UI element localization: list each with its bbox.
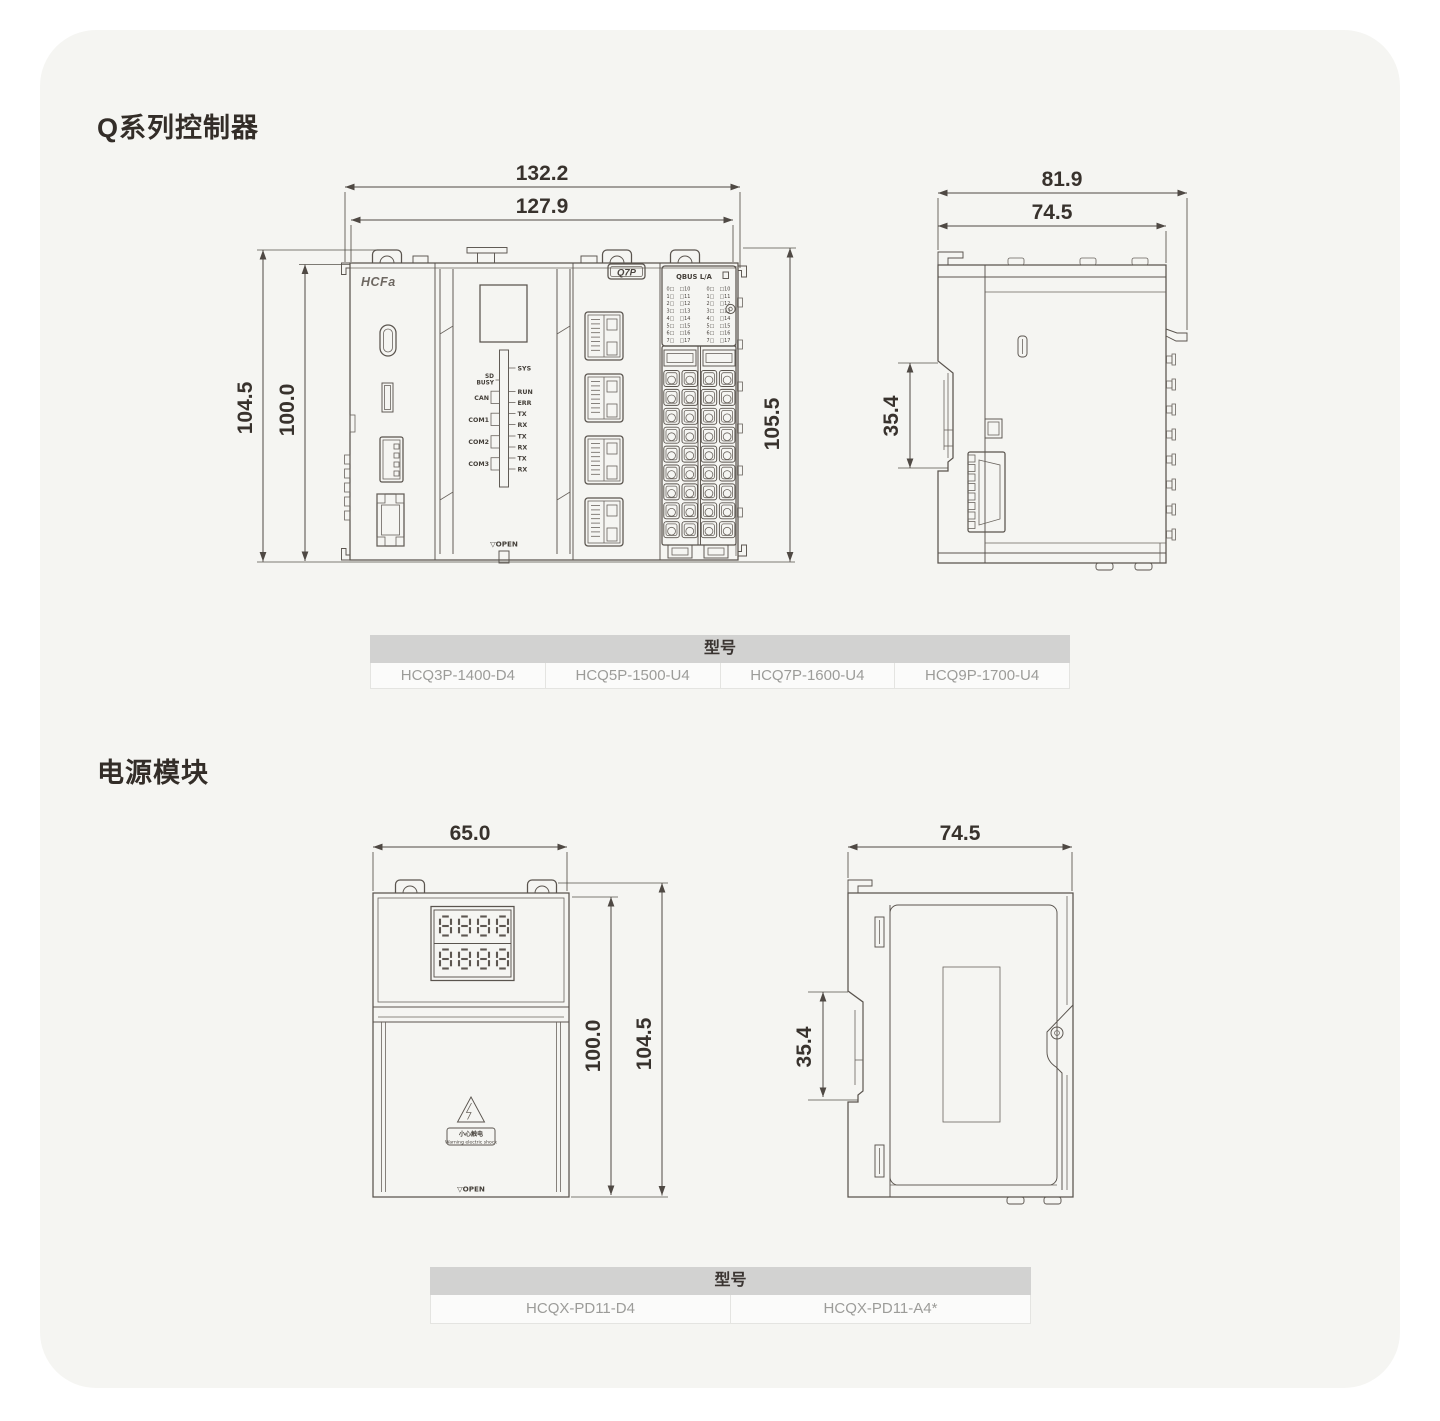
svg-text:RX: RX	[518, 466, 528, 473]
backplane-connector	[968, 452, 1005, 532]
svg-text:□17: □17	[680, 338, 691, 344]
svg-text:2□: 2□	[707, 301, 715, 307]
svg-text:□14: □14	[680, 316, 691, 322]
bus-hook	[1166, 329, 1187, 341]
svg-text:BUSY: BUSY	[477, 381, 495, 387]
svg-text:3□: 3□	[667, 309, 675, 315]
io-led-matrix: 0□□100□□101□□111□□112□□122□□123□□133□□13…	[667, 287, 731, 344]
svg-text:□16: □16	[720, 331, 731, 337]
svg-text:□11: □11	[680, 294, 691, 300]
warning-en: Warning electric shock	[445, 1140, 497, 1146]
model-cell: HCQX-PD11-A4*	[731, 1295, 1030, 1323]
svg-text:6□: 6□	[667, 331, 675, 337]
controller-model-table: 型号 HCQ3P-1400-D4HCQ5P-1500-U4HCQ7P-1600-…	[370, 635, 1070, 689]
svg-text:RUN: RUN	[518, 389, 533, 396]
open-label: ▽OPEN	[457, 1185, 485, 1194]
mounting-tabs	[396, 880, 557, 893]
svg-text:4□: 4□	[707, 316, 715, 322]
svg-text:5□: 5□	[707, 323, 715, 329]
svg-text:RX: RX	[518, 444, 528, 451]
svg-text:0□: 0□	[667, 287, 675, 293]
dim-width-inner: 127.9	[516, 195, 569, 218]
table-header: 型号	[370, 635, 1070, 663]
svg-text:1□: 1□	[707, 294, 715, 300]
dim-width-outer: 132.2	[516, 162, 569, 185]
warning-cn: 小心触电	[458, 1130, 483, 1138]
table-header: 型号	[430, 1267, 1031, 1295]
svg-text:□13: □13	[680, 309, 691, 315]
svg-text:□12: □12	[680, 301, 691, 307]
dim-height-inner: 100.0	[582, 1020, 605, 1073]
svg-text:□10: □10	[720, 287, 731, 293]
svg-text:5□: 5□	[667, 323, 675, 329]
warning-sign: 小心触电 Warning electric shock	[445, 1097, 497, 1146]
svg-text:□15: □15	[720, 323, 731, 329]
svg-text:0□: 0□	[707, 287, 715, 293]
expansion-port	[377, 494, 404, 546]
terminal-grid	[664, 371, 735, 538]
power-model-table: 型号 HCQX-PD11-D4HCQX-PD11-A4*	[430, 1267, 1031, 1324]
svg-text:1□: 1□	[667, 294, 675, 300]
power-front-drawing: 小心触电 Warning electric shock ▽OPEN 65.0 1…	[373, 822, 668, 1197]
svg-text:□11: □11	[720, 294, 731, 300]
model-cell: HCQ9P-1700-U4	[895, 663, 1069, 688]
io-header-label: QBUS L/A	[676, 273, 713, 281]
svg-text:RX: RX	[518, 422, 528, 429]
table-row: HCQ3P-1400-D4HCQ5P-1500-U4HCQ7P-1600-U4H…	[370, 663, 1070, 689]
svg-text:6□: 6□	[707, 331, 715, 337]
svg-text:3□: 3□	[707, 309, 715, 315]
svg-text:4□: 4□	[667, 316, 675, 322]
top-hook	[938, 252, 963, 265]
svg-text:TX: TX	[518, 411, 527, 418]
dim-din-rail: 35.4	[793, 1026, 816, 1067]
sd-card-slot	[382, 383, 393, 412]
svg-text:SD: SD	[485, 374, 494, 380]
svg-text:□12: □12	[720, 301, 731, 307]
drawings-layer: HCFa SYSRUNERRTXRXTXRXTXRX SDBUSYCANCOM	[0, 0, 1440, 1421]
model-cell: HCQ7P-1600-U4	[721, 663, 896, 688]
svg-text:□15: □15	[680, 323, 691, 329]
open-label: ▽OPEN	[490, 540, 518, 549]
power-side-drawing: 74.5 35.4	[793, 822, 1073, 1204]
model-cell: HCQX-PD11-D4	[431, 1295, 731, 1323]
dim-din-rail: 35.4	[880, 395, 903, 436]
dim-height-outer: 104.5	[633, 1017, 656, 1070]
model-cell: HCQ5P-1500-U4	[546, 663, 721, 688]
svg-text:TX: TX	[518, 455, 527, 462]
svg-text:ERR: ERR	[518, 400, 532, 407]
svg-text:COM3: COM3	[468, 461, 489, 468]
svg-text:7□: 7□	[667, 338, 675, 344]
usb-c-port	[380, 325, 396, 356]
led-strip	[500, 350, 509, 487]
dim-width: 65.0	[450, 822, 491, 845]
io-module: QBUS L/A 0□□100□□101□□111□□112□□122□□123…	[662, 266, 747, 558]
usb-a-port	[380, 437, 403, 482]
cpu-window	[480, 285, 527, 342]
dim-depth: 74.5	[940, 822, 981, 845]
dim-height-inner: 100.0	[276, 384, 299, 437]
svg-text:□16: □16	[680, 331, 691, 337]
svg-text:□17: □17	[720, 338, 731, 344]
led-labels-left: SDBUSYCANCOM1COM2COM3	[468, 374, 499, 470]
brand-logo: HCFa	[361, 275, 396, 289]
svg-text:COM1: COM1	[468, 417, 489, 424]
svg-text:7□: 7□	[707, 338, 715, 344]
din-latch-bottom	[342, 549, 351, 561]
dim-depth-outer: 81.9	[1042, 168, 1083, 191]
model-cell: HCQ3P-1400-D4	[371, 663, 546, 688]
dim-height-right: 105.5	[761, 397, 784, 450]
bus-pins	[1167, 354, 1176, 540]
svg-text:CAN: CAN	[474, 395, 489, 402]
mounting-tabs	[373, 250, 700, 263]
svg-text:Q7P: Q7P	[617, 268, 637, 279]
dim-depth-inner: 74.5	[1032, 201, 1073, 224]
svg-text:SYS: SYS	[518, 365, 532, 372]
svg-text:COM2: COM2	[468, 439, 489, 446]
controller-front-drawing: HCFa SYSRUNERRTXRXTXRXTXRX SDBUSYCANCOM	[234, 162, 796, 563]
controller-side-drawing: 81.9 74.5 35.4	[880, 168, 1187, 570]
led-labels-right: SYSRUNERRTXRXTXRXTXRX	[509, 365, 533, 473]
release-lever	[1047, 896, 1073, 1190]
dim-height-outer: 104.5	[234, 381, 257, 434]
svg-text:TX: TX	[518, 433, 527, 440]
seven-segment-display	[431, 907, 514, 981]
ethernet-ports	[585, 312, 623, 546]
svg-text:□10: □10	[680, 287, 691, 293]
svg-text:2□: 2□	[667, 301, 675, 307]
cpu-badge: Q7P	[608, 264, 645, 279]
table-row: HCQX-PD11-D4HCQX-PD11-A4*	[430, 1295, 1031, 1324]
top-hook	[848, 880, 872, 893]
svg-text:□14: □14	[720, 316, 731, 322]
